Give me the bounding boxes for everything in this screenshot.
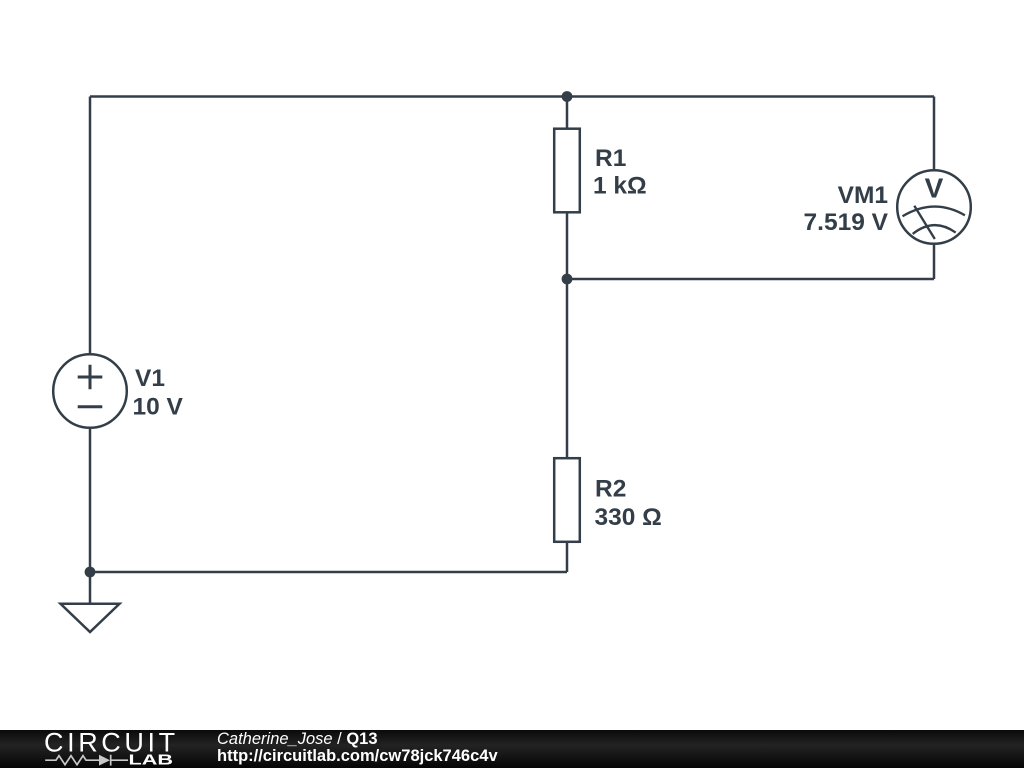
svg-text:LAB: LAB bbox=[129, 751, 174, 768]
svg-text:7.519 V: 7.519 V bbox=[804, 209, 889, 236]
svg-text:10 V: 10 V bbox=[133, 394, 184, 421]
svg-text:V: V bbox=[925, 172, 944, 203]
svg-text:R1: R1 bbox=[595, 145, 626, 172]
svg-text:VM1: VM1 bbox=[838, 182, 888, 209]
svg-text:V1: V1 bbox=[135, 365, 165, 392]
svg-text:1 kΩ: 1 kΩ bbox=[593, 172, 647, 199]
svg-text:R2: R2 bbox=[595, 476, 626, 503]
svg-text:330 Ω: 330 Ω bbox=[595, 504, 662, 531]
